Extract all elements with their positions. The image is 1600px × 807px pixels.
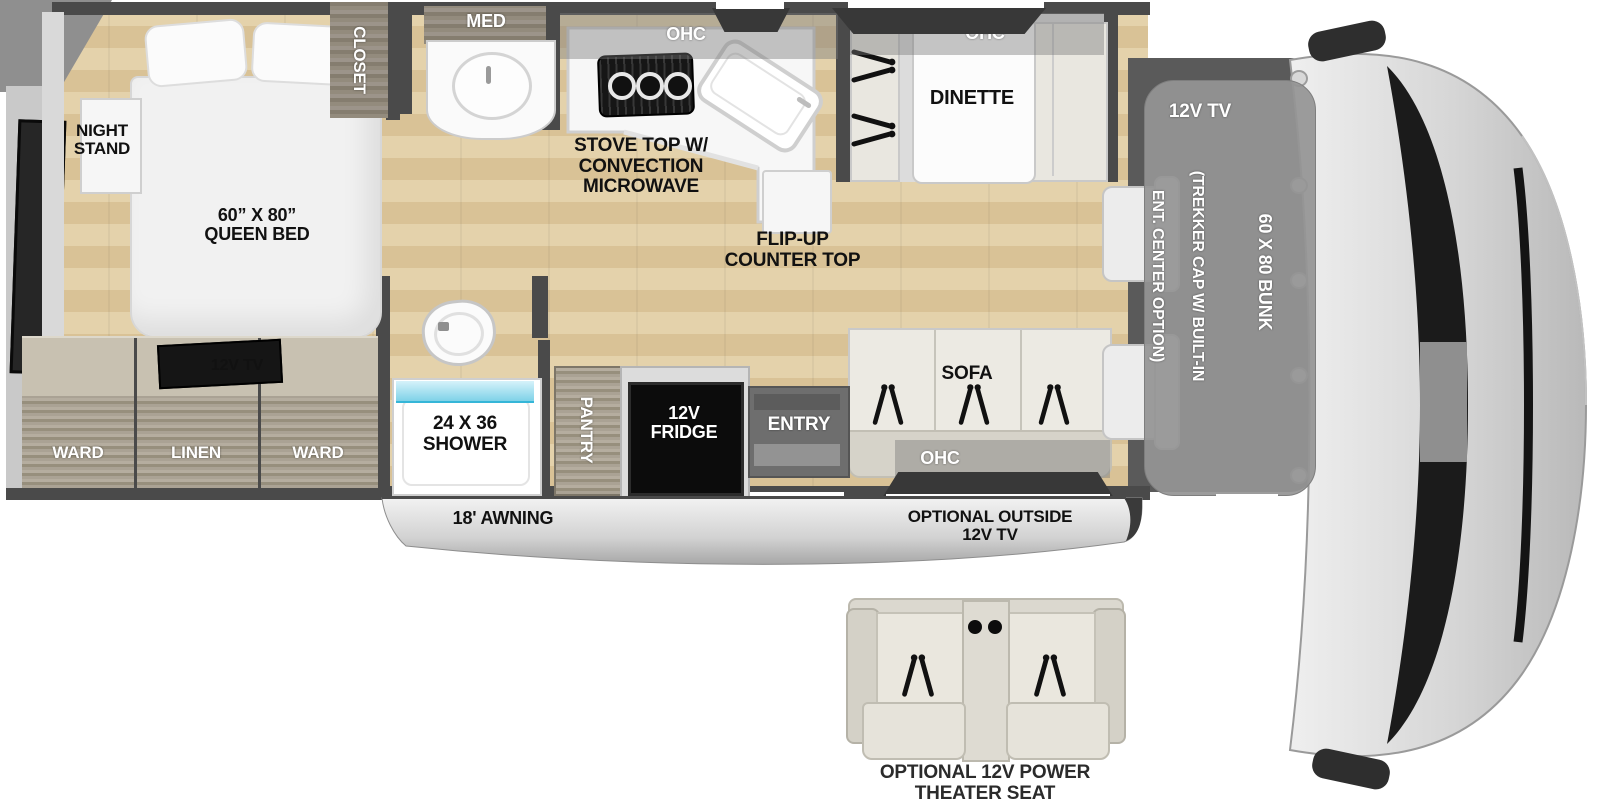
shower-label: 24 X 36SHOWER xyxy=(396,414,534,455)
queen-bed-line1: 60” X 80” xyxy=(218,205,296,225)
bath-faucet xyxy=(486,66,491,84)
toilet-flush xyxy=(438,322,449,331)
theater-line1: OPTIONAL 12V POWER xyxy=(880,762,1090,783)
kitchen-window-shade xyxy=(712,8,790,32)
cupholder xyxy=(968,620,982,634)
shower-water-band xyxy=(396,381,534,403)
wardrobe-label-left: WARD xyxy=(32,444,124,462)
flip-up-line1: FLIP-UP xyxy=(756,229,829,250)
dinette-window-slit xyxy=(848,2,1044,8)
stove-burner xyxy=(636,72,664,100)
cab-nose xyxy=(1270,20,1600,790)
outside-tv-label: OPTIONAL OUTSIDE12V TV xyxy=(888,508,1092,545)
stove-burner xyxy=(664,72,692,100)
front-door-side-slit xyxy=(1216,494,1278,502)
kitchen-window-slit xyxy=(716,2,784,9)
wardrobe-label-right: WARD xyxy=(272,444,364,462)
flip-up-counter xyxy=(762,170,832,234)
dinette-window-shade xyxy=(832,8,1046,34)
trekker-note: (TREKKER CAP W/ BUILT-IN ENT. CENTER OPT… xyxy=(1185,121,1227,431)
seat-stitch-icon xyxy=(1028,650,1072,700)
seat-stitch-icon xyxy=(896,650,940,700)
theater-seat-label: OPTIONAL 12V POWERTHEATER SEAT xyxy=(860,763,1110,804)
theater-cushion-left xyxy=(862,702,966,760)
seat-stitch-icon xyxy=(1032,380,1076,428)
fridge-line1: 12V xyxy=(668,403,699,423)
seat-stitch-icon xyxy=(952,380,996,428)
outside-tv-line2: 12V TV xyxy=(962,525,1018,544)
med-label: MED xyxy=(446,12,526,31)
bunk-label: 60 X 80 BUNK xyxy=(1254,167,1274,377)
shower-line1: 24 X 36 xyxy=(433,413,497,434)
flip-up-line2: COUNTER TOP xyxy=(725,250,861,271)
stove-line3: MICROWAVE xyxy=(583,176,699,197)
entry-label: ENTRY xyxy=(757,415,841,436)
trekker-note-line2: ENT. CENTER OPTION) xyxy=(1147,121,1167,431)
stove-line1: STOVE TOP W/ xyxy=(574,135,708,156)
floorplan-canvas: NIGHT STAND 60” X 80”QUEEN BED CLOSET 12… xyxy=(0,0,1600,807)
cupholder xyxy=(988,620,1002,634)
bath-sink-bowl xyxy=(452,52,532,120)
queen-bed-label: 60” X 80”QUEEN BED xyxy=(182,206,332,245)
kitchen-ohc-label: OHC xyxy=(646,25,726,44)
pillow xyxy=(143,18,248,88)
night-stand-label: NIGHT STAND xyxy=(54,122,150,159)
closet-side-wall xyxy=(386,2,400,120)
sofa-ohc-label: OHC xyxy=(900,449,980,468)
trekker-note-line1: (TREKKER CAP W/ BUILT-IN xyxy=(1187,121,1207,431)
fridge-line2: FRIDGE xyxy=(651,422,718,442)
wardrobe-divider xyxy=(134,338,137,488)
linen-label: LINEN xyxy=(150,444,242,462)
cab-tv-label: 12V TV xyxy=(1150,102,1250,123)
stove-burner xyxy=(608,72,636,100)
seat-stitch-icon xyxy=(848,108,900,152)
toilet-room-right-wall xyxy=(532,276,548,338)
seat-stitch-icon xyxy=(866,380,910,428)
flip-up-label: FLIP-UPCOUNTER TOP xyxy=(710,230,875,271)
stove-line2: CONVECTION xyxy=(579,156,704,177)
pantry-label: PANTRY xyxy=(577,375,595,485)
shower-line2: SHOWER xyxy=(423,434,507,455)
entry-step xyxy=(754,394,840,410)
theater-line2: THEATER SEAT xyxy=(915,783,1055,804)
closet-label: CLOSET xyxy=(350,5,368,115)
awning-label: 18' AWNING xyxy=(438,509,568,528)
bedroom-tv-label: 12V TV xyxy=(187,357,287,374)
outside-tv-line1: OPTIONAL OUTSIDE xyxy=(908,507,1073,526)
stove-label: STOVE TOP W/CONVECTIONMICROWAVE xyxy=(555,136,727,198)
dinette-label: DINETTE xyxy=(912,88,1032,110)
sofa-seam xyxy=(1020,330,1022,430)
wardrobe-faces xyxy=(22,396,378,488)
entry-step xyxy=(754,444,840,466)
fridge-label: 12VFRIDGE xyxy=(628,404,740,443)
bed-slide-wall xyxy=(42,12,64,336)
theater-cushion-right xyxy=(1006,702,1110,760)
queen-bed-line2: QUEEN BED xyxy=(204,224,309,244)
